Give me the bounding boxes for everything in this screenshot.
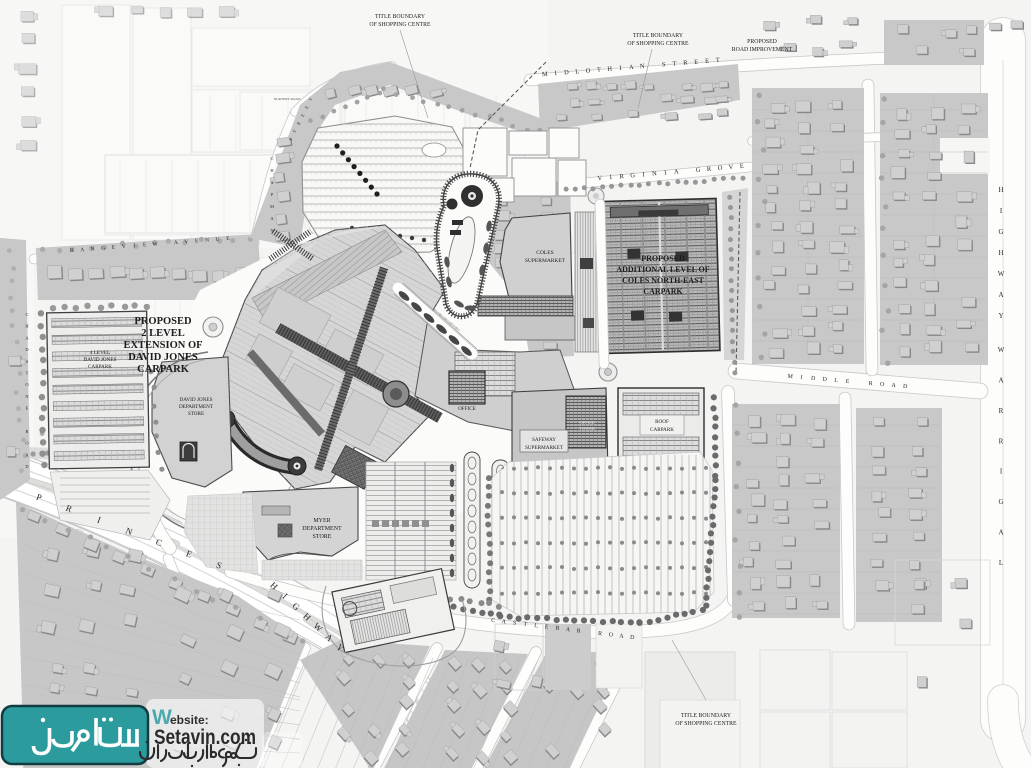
svg-text:T: T xyxy=(716,57,721,64)
svg-text:CARPARK: CARPARK xyxy=(88,364,112,370)
svg-text:R: R xyxy=(598,631,603,637)
svg-text:PROPOSED: PROPOSED xyxy=(747,39,777,45)
svg-text:SUPERMARKET: SUPERMARKET xyxy=(525,445,564,451)
svg-text:H: H xyxy=(607,66,613,73)
svg-text:N: N xyxy=(640,63,646,70)
svg-text:V: V xyxy=(728,164,734,171)
svg-text:N: N xyxy=(652,170,658,177)
svg-text:E: E xyxy=(694,59,699,66)
svg-text:SAFEWAY: SAFEWAY xyxy=(532,437,556,443)
svg-text:R: R xyxy=(999,437,1004,445)
svg-text:M: M xyxy=(270,204,274,209)
svg-text:C: C xyxy=(26,312,29,317)
svg-text:O: O xyxy=(717,165,723,172)
svg-text:2 LEVEL: 2 LEVEL xyxy=(141,328,184,339)
svg-text:A: A xyxy=(80,247,84,253)
svg-text:OFFICE: OFFICE xyxy=(579,420,594,425)
svg-text:O: O xyxy=(25,441,28,446)
svg-text:OF SHOPPING CENTRE: OF SHOPPING CENTRE xyxy=(627,41,689,47)
svg-text:R: R xyxy=(576,628,581,634)
svg-text:PROPOSED: PROPOSED xyxy=(134,316,192,327)
svg-text:V: V xyxy=(184,239,188,245)
svg-text:OFFICE: OFFICE xyxy=(458,406,476,412)
svg-text:DAVID JONES: DAVID JONES xyxy=(84,357,117,363)
svg-text:A: A xyxy=(998,529,1003,537)
svg-text:H: H xyxy=(998,186,1003,194)
svg-text:T: T xyxy=(26,371,29,376)
svg-text:TITLE BOUNDARY: TITLE BOUNDARY xyxy=(375,14,426,20)
svg-text:L: L xyxy=(575,68,580,75)
svg-text:R: R xyxy=(868,381,873,387)
svg-text:CARPARK: CARPARK xyxy=(137,364,190,375)
svg-text:CARPARK: CARPARK xyxy=(643,287,683,296)
svg-text:B: B xyxy=(555,626,560,632)
svg-text:Setavin.com: Setavin.com xyxy=(154,726,256,749)
svg-text:TITLE BOUNDARY: TITLE BOUNDARY xyxy=(681,713,732,719)
svg-text:ROOF: ROOF xyxy=(655,419,669,425)
svg-text:W: W xyxy=(998,346,1005,354)
svg-text:L: L xyxy=(999,559,1003,567)
svg-text:ebsite:: ebsite: xyxy=(170,713,209,727)
svg-text:DAVID JONES: DAVID JONES xyxy=(128,352,198,363)
svg-text:C: C xyxy=(491,618,496,624)
svg-text:STORE: STORE xyxy=(313,534,332,540)
svg-text:COLES: COLES xyxy=(536,250,553,256)
svg-text:A: A xyxy=(998,376,1003,384)
svg-text:CARPARK: CARPARK xyxy=(650,427,674,433)
svg-text:MYER: MYER xyxy=(313,518,330,524)
svg-text:M: M xyxy=(542,71,549,78)
svg-text:SUPERMARKET: SUPERMARKET xyxy=(525,258,566,264)
svg-text:G: G xyxy=(998,228,1003,236)
svg-text:STORE: STORE xyxy=(188,411,204,417)
svg-text:4 LEVEL: 4 LEVEL xyxy=(90,350,110,356)
svg-text:C: C xyxy=(270,156,273,161)
svg-text:T: T xyxy=(597,66,602,73)
svg-text:T: T xyxy=(672,60,677,67)
svg-text:R: R xyxy=(999,407,1004,415)
svg-text:N: N xyxy=(205,237,209,243)
svg-text:A: A xyxy=(629,64,635,71)
svg-text:O: O xyxy=(585,67,591,74)
svg-text:ADDITIONAL LEVEL OF: ADDITIONAL LEVEL OF xyxy=(616,265,709,274)
svg-text:ROAD IMPROVEMENT: ROAD IMPROVEMENT xyxy=(732,47,793,53)
svg-text:E: E xyxy=(740,163,745,170)
svg-text:O: O xyxy=(25,382,28,387)
svg-text:D: D xyxy=(25,347,28,352)
svg-text:EXTENSION OF: EXTENSION OF xyxy=(123,340,202,351)
svg-text:TITLE BOUNDARY: TITLE BOUNDARY xyxy=(633,33,684,39)
svg-text:W: W xyxy=(998,270,1005,278)
svg-text:A: A xyxy=(674,168,680,175)
svg-text:E: E xyxy=(26,406,29,411)
svg-text:TOWER: TOWER xyxy=(579,426,595,431)
svg-text:R: R xyxy=(26,429,29,434)
svg-text:DAVID JONES: DAVID JONES xyxy=(180,397,213,403)
svg-text:Y: Y xyxy=(998,312,1003,320)
svg-text:A: A xyxy=(998,291,1003,299)
svg-text:D: D xyxy=(564,69,570,76)
svg-text:OF SHOPPING CENTRE: OF SHOPPING CENTRE xyxy=(369,22,431,28)
svg-text:H: H xyxy=(998,249,1003,257)
svg-text:D: D xyxy=(25,464,28,469)
svg-text:DEPARTMENT: DEPARTMENT xyxy=(179,404,214,410)
svg-text:E: E xyxy=(705,58,710,65)
svg-text:A: A xyxy=(174,240,178,246)
svg-text:NURSERY ROAD: NURSERY ROAD xyxy=(274,97,301,101)
svg-text:G: G xyxy=(630,172,636,179)
svg-text:N: N xyxy=(91,246,95,252)
svg-text:V: V xyxy=(122,244,126,250)
svg-text:V: V xyxy=(597,175,603,182)
svg-text:PROPOSED: PROPOSED xyxy=(641,254,685,263)
svg-text:DEPARTMENT: DEPARTMENT xyxy=(302,526,342,532)
svg-text:U: U xyxy=(215,237,219,243)
svg-text:G: G xyxy=(101,245,105,251)
svg-text:G: G xyxy=(696,166,702,173)
svg-text:COLES NORTH-EAST: COLES NORTH-EAST xyxy=(622,276,704,285)
svg-text:OF SHOPPING CENTRE: OF SHOPPING CENTRE xyxy=(675,721,737,727)
svg-text:G: G xyxy=(998,498,1003,506)
